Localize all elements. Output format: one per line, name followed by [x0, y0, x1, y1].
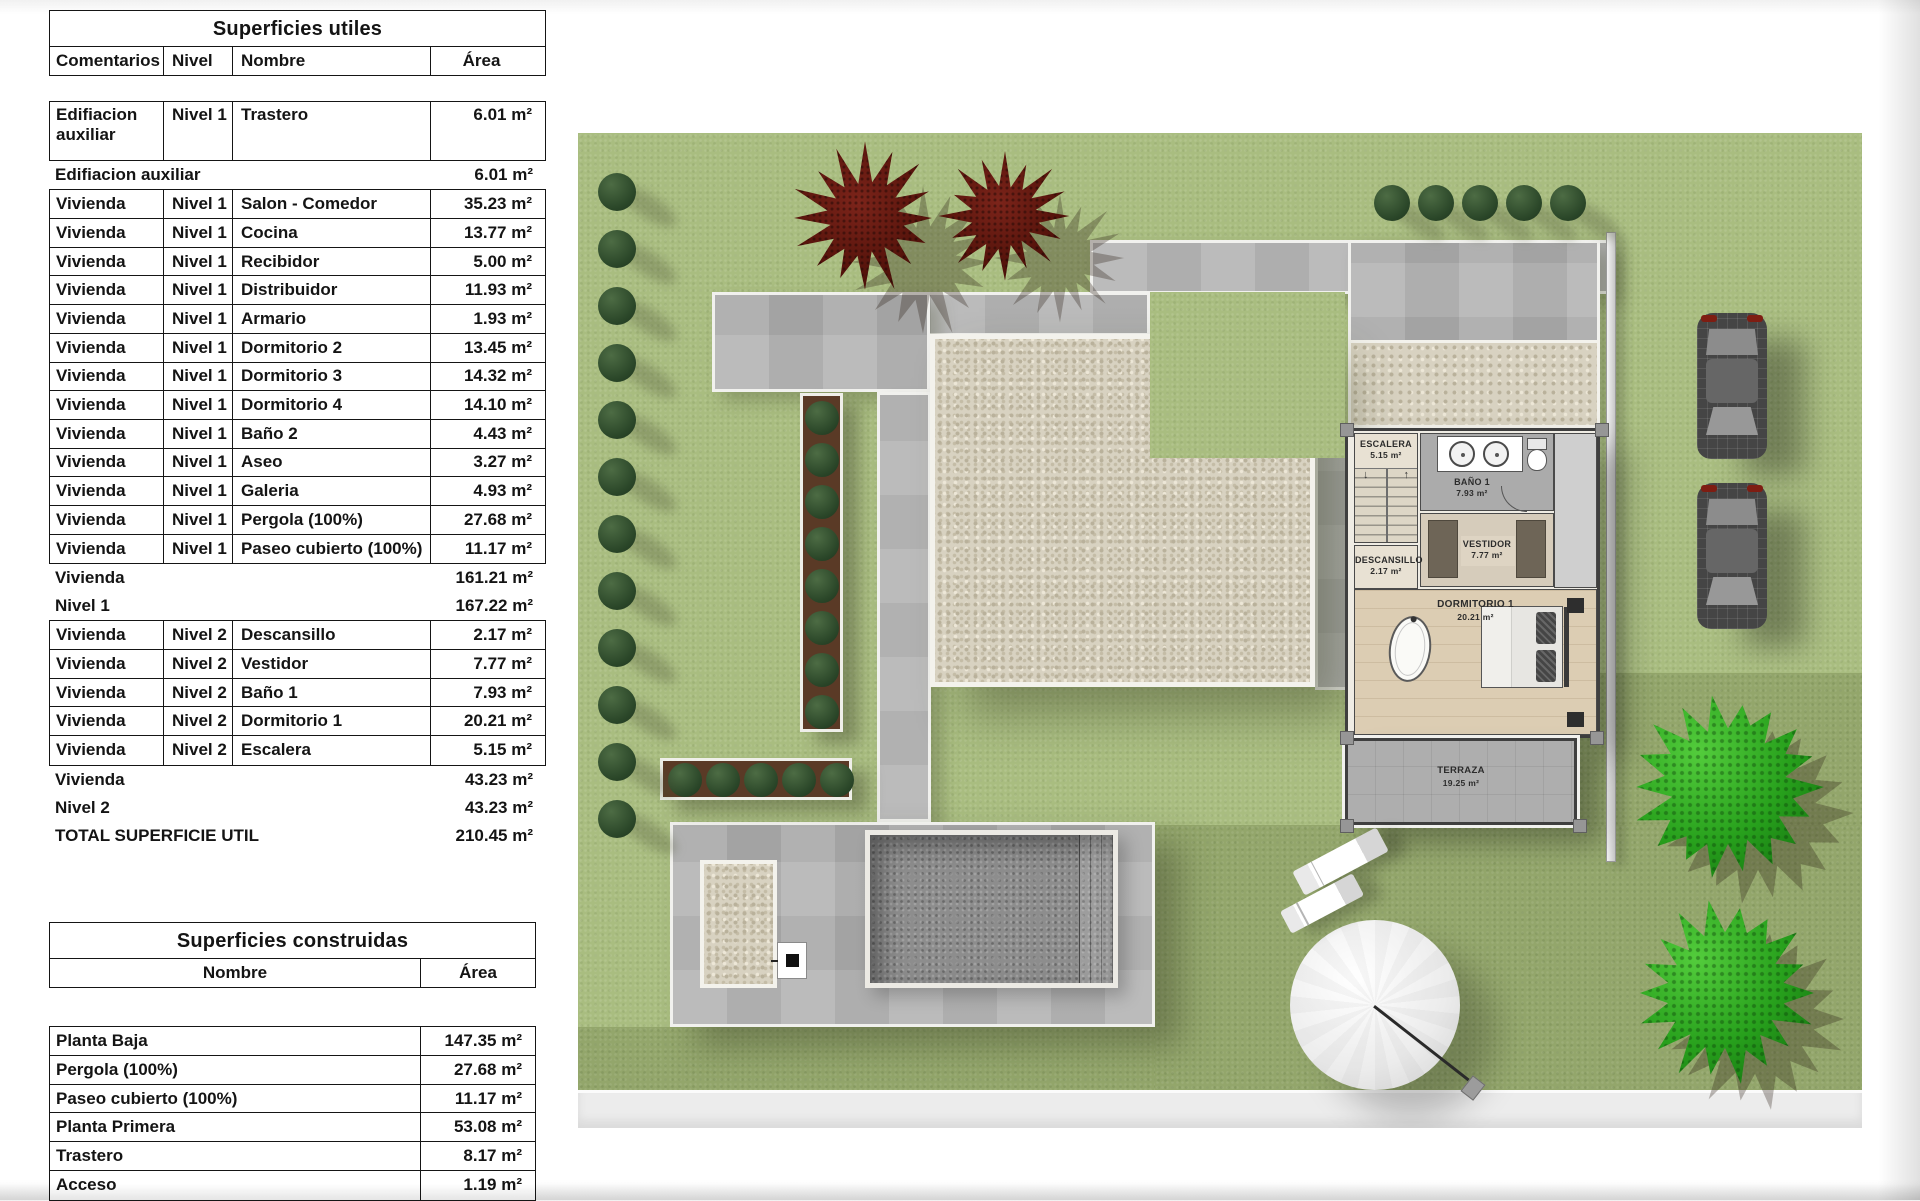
table-cell: 147.35 m²	[421, 1027, 535, 1055]
room-descansillo: DESCANSILLO2.17 m²	[1354, 545, 1418, 589]
decor: ESCALERA	[1355, 438, 1417, 450]
table-row: ViviendaNivel 1Recibidor5.00 m²	[50, 248, 545, 277]
table-cell: 11.17 m²	[431, 535, 545, 564]
table-cell: Vivienda	[50, 190, 164, 218]
planter-vertical	[800, 393, 843, 732]
table-cell: Vivienda	[50, 736, 164, 765]
table-cell: Nivel 1	[164, 449, 233, 477]
table-cell: Vivienda	[50, 363, 164, 391]
sidewalk	[578, 1090, 1862, 1128]
table-group: Planta Baja147.35 m²Pergola (100%)27.68 …	[49, 1026, 536, 1200]
table-header: Comentarios Nivel Nombre Área	[49, 46, 546, 76]
car-part	[1706, 329, 1758, 355]
table-subtotal-row: Vivienda43.23 m²	[49, 766, 546, 794]
table-cell: Vivienda	[50, 506, 164, 534]
header-area: Área	[431, 47, 545, 75]
table-cell: Vivienda	[50, 621, 164, 649]
room-bano-1: BAÑO 17.93 m²	[1420, 433, 1554, 511]
table-cell: 6.01 m²	[431, 102, 545, 160]
table-cell: 2.17 m²	[431, 621, 545, 649]
table-cell: Armario	[233, 305, 431, 333]
page-edge-shadow	[1878, 0, 1920, 1200]
decor: Nivel 2	[49, 798, 430, 818]
bush	[1462, 185, 1498, 221]
bush	[598, 686, 636, 724]
car-part	[1747, 315, 1763, 322]
table-cell: Paseo cubierto (100%)	[50, 1085, 421, 1113]
table-row: ViviendaNivel 2Vestidor7.77 m²	[50, 650, 545, 679]
table-cell: Nivel 1	[164, 391, 233, 419]
table-row: ViviendaNivel 1Armario1.93 m²	[50, 305, 545, 334]
bush	[598, 230, 636, 268]
garden-path	[877, 392, 931, 822]
table-row: ViviendaNivel 1Aseo3.27 m²	[50, 449, 545, 478]
table-cell: Vivienda	[50, 477, 164, 505]
table-row: ViviendaNivel 1Paseo cubierto (100%)11.1…	[50, 535, 545, 564]
table-cell: Nivel 1	[164, 305, 233, 333]
table-cell: Vivienda	[50, 420, 164, 448]
table-cell: Acceso	[50, 1171, 421, 1200]
decor: DESCANSILLO2.17 m²	[1355, 554, 1417, 578]
pool	[865, 830, 1118, 988]
table-row: ViviendaNivel 1Salon - Comedor35.23 m²	[50, 190, 545, 219]
table-cell: Paseo cubierto (100%)	[233, 535, 431, 564]
table-cell: Galeria	[233, 477, 431, 505]
table-cell: Dormitorio 4	[233, 391, 431, 419]
table-cell: Trastero	[50, 1142, 421, 1170]
bush	[744, 763, 778, 797]
outdoor-shower	[777, 942, 807, 979]
table-cell: Nivel 1	[164, 190, 233, 218]
bush	[598, 743, 636, 781]
table-cell: 35.23 m²	[431, 190, 545, 218]
bush	[805, 653, 839, 687]
bush	[598, 287, 636, 325]
table-cell: Cocina	[233, 219, 431, 247]
room-side	[1554, 433, 1597, 588]
table-cell: Nivel 1	[164, 334, 233, 362]
parasol	[1290, 920, 1460, 1090]
header-nivel: Nivel	[164, 47, 233, 75]
table-cell: Nivel 1	[164, 219, 233, 247]
bush	[805, 569, 839, 603]
table-row: ViviendaNivel 1Dormitorio 314.32 m²	[50, 363, 545, 392]
table-cell: Pergola (100%)	[233, 506, 431, 534]
table-cell: Vivienda	[50, 535, 164, 564]
car	[1697, 483, 1767, 629]
site-plan: ESCALERA5.15 m² ↓↑ BAÑO 17.93 m² VESTIDO…	[578, 133, 1862, 1128]
table-cell: Planta Primera	[50, 1113, 421, 1141]
table-cell: Trastero	[233, 102, 431, 160]
table-group: ViviendaNivel 1Salon - Comedor35.23 m²Vi…	[49, 189, 546, 564]
bush	[1506, 185, 1542, 221]
table-cell: Vivienda	[50, 650, 164, 678]
pillar	[1595, 423, 1609, 437]
table-cell: 27.68 m²	[431, 506, 545, 534]
table-row: Trastero8.17 m²	[50, 1142, 535, 1171]
car-part	[1701, 315, 1717, 322]
table-group: Edifiacion auxiliarNivel 1Trastero6.01 m…	[49, 101, 546, 161]
table-row: Planta Baja147.35 m²	[50, 1027, 535, 1056]
pillar	[1573, 819, 1587, 833]
table-cell: Nivel 1	[164, 248, 233, 276]
stairs: ↓↑	[1355, 468, 1417, 542]
table-row: Paseo cubierto (100%)11.17 m²	[50, 1085, 535, 1114]
decor: DORMITORIO 1	[1355, 598, 1596, 612]
table-cell: 5.15 m²	[431, 736, 545, 765]
car	[1697, 313, 1767, 459]
table-cell: Nivel 2	[164, 679, 233, 707]
decor: ESCALERA5.15 m²	[1355, 438, 1417, 462]
bush	[598, 572, 636, 610]
decor	[49, 988, 536, 1026]
bush	[598, 800, 636, 838]
bush	[805, 527, 839, 561]
bush	[820, 763, 854, 797]
table-row: Acceso1.19 m²	[50, 1171, 535, 1200]
header-comentarios: Comentarios	[50, 47, 164, 75]
lawn-notch	[1150, 292, 1345, 458]
table-cell: Baño 2	[233, 420, 431, 448]
table-row: ViviendaNivel 1Cocina13.77 m²	[50, 219, 545, 248]
decor: 7.93 m²	[1427, 488, 1517, 499]
table-cell: 11.17 m²	[421, 1085, 535, 1113]
table-cell: Salon - Comedor	[233, 190, 431, 218]
table-cell: Nivel 1	[164, 477, 233, 505]
table-row: ViviendaNivel 2Escalera5.15 m²	[50, 736, 545, 765]
table-cell: 14.32 m²	[431, 363, 545, 391]
sink	[1483, 441, 1509, 467]
header-area: Área	[421, 959, 535, 987]
table-body: Planta Baja147.35 m²Pergola (100%)27.68 …	[49, 1026, 536, 1200]
table-cell: Escalera	[233, 736, 431, 765]
decor: DORMITORIO 120.21 m²	[1355, 598, 1596, 623]
boundary-fence	[1606, 232, 1616, 862]
bush	[1550, 185, 1586, 221]
table-cell: Nivel 2	[164, 707, 233, 735]
decor	[49, 76, 546, 101]
table-cell: Vivienda	[50, 391, 164, 419]
decor: Vivienda	[49, 568, 430, 588]
table-cell: 5.00 m²	[431, 248, 545, 276]
bush	[598, 344, 636, 382]
table-row: ViviendaNivel 1Pergola (100%)27.68 m²	[50, 506, 545, 535]
header-nombre: Nombre	[233, 47, 431, 75]
superficies-construidas-table: Superficies construidas Nombre Área Plan…	[49, 922, 536, 1201]
table-total-row: TOTAL SUPERFICIE UTIL210.45 m²	[49, 822, 546, 850]
table-header: Nombre Área	[49, 958, 536, 988]
table-cell: 1.93 m²	[431, 305, 545, 333]
decor: 210.45 m²	[430, 826, 546, 846]
table-cell: Recibidor	[233, 248, 431, 276]
table-title: Superficies utiles	[49, 10, 546, 48]
decor: VESTIDOR	[1421, 538, 1553, 550]
table-cell: Descansillo	[233, 621, 431, 649]
table-cell: 4.43 m²	[431, 420, 545, 448]
table-cell: 13.77 m²	[431, 219, 545, 247]
table-cell: Vivienda	[50, 305, 164, 333]
pool-steps	[1079, 835, 1113, 983]
table-cell: 11.93 m²	[431, 276, 545, 304]
table-cell: 27.68 m²	[421, 1056, 535, 1084]
table-row: ViviendaNivel 2Dormitorio 120.21 m²	[50, 707, 545, 736]
bush	[805, 611, 839, 645]
bush	[598, 458, 636, 496]
table-cell: Vivienda	[50, 334, 164, 362]
house-upper-floor: ESCALERA5.15 m² ↓↑ BAÑO 17.93 m² VESTIDO…	[1345, 428, 1600, 738]
bush	[805, 443, 839, 477]
bush	[1374, 185, 1410, 221]
car-part	[1706, 499, 1758, 525]
decor: TERRAZA	[1348, 765, 1574, 778]
table-subtotal-row: Nivel 243.23 m²	[49, 794, 546, 822]
table-cell: Vivienda	[50, 707, 164, 735]
pillar	[1340, 731, 1354, 745]
table-cell: 7.93 m²	[431, 679, 545, 707]
pillar	[1340, 423, 1354, 437]
bush	[706, 763, 740, 797]
table-row: ViviendaNivel 2Baño 17.93 m²	[50, 679, 545, 708]
table-cell: Vivienda	[50, 449, 164, 477]
table-cell: Vivienda	[50, 679, 164, 707]
decor: 19.25 m²	[1348, 778, 1574, 789]
table-cell: 8.17 m²	[421, 1142, 535, 1170]
table-row: Pergola (100%)27.68 m²	[50, 1056, 535, 1085]
table-cell: 53.08 m²	[421, 1113, 535, 1141]
table-row: Edifiacion auxiliarNivel 1Trastero6.01 m…	[50, 102, 545, 160]
bush	[805, 485, 839, 519]
pillar	[1590, 731, 1604, 745]
table-cell: Vivienda	[50, 219, 164, 247]
table-cell: Vivienda	[50, 248, 164, 276]
terraza: TERRAZA19.25 m²	[1345, 738, 1577, 825]
table-cell: 7.77 m²	[431, 650, 545, 678]
decor: 20.21 m²	[1355, 612, 1596, 623]
side-walkway	[1315, 455, 1349, 690]
decor: 167.22 m²	[430, 596, 546, 616]
car-part	[1706, 577, 1758, 605]
bush	[598, 515, 636, 553]
room-escalera: ESCALERA5.15 m² ↓↑	[1354, 433, 1418, 543]
table-cell: Dormitorio 1	[233, 707, 431, 735]
terrace-left-block	[712, 292, 930, 392]
decor: DESCANSILLO	[1355, 554, 1417, 566]
decor: 5.15 m²	[1355, 450, 1417, 461]
table-body: Edifiacion auxiliarNivel 1Trastero6.01 m…	[49, 101, 546, 849]
table-cell: Dormitorio 2	[233, 334, 431, 362]
car-part	[1701, 485, 1717, 492]
table-cell: Nivel 1	[164, 276, 233, 304]
decor: 43.23 m²	[430, 798, 546, 818]
table-row: ViviendaNivel 2Descansillo2.17 m²	[50, 621, 545, 650]
table-cell: Distribuidor	[233, 276, 431, 304]
table-title: Superficies construidas	[49, 922, 536, 960]
table-cell: Aseo	[233, 449, 431, 477]
table-cell: 13.45 m²	[431, 334, 545, 362]
table-row: ViviendaNivel 1Galeria4.93 m²	[50, 477, 545, 506]
table-cell: 4.93 m²	[431, 477, 545, 505]
bush	[598, 629, 636, 667]
decor: 161.21 m²	[430, 568, 546, 588]
table-cell: Nivel 1	[164, 102, 233, 160]
car-part	[1706, 529, 1758, 573]
table-cell: Dormitorio 3	[233, 363, 431, 391]
table-cell: Edifiacion auxiliar	[50, 102, 164, 160]
decor: BAÑO 17.93 m²	[1427, 476, 1517, 500]
bush	[782, 763, 816, 797]
decor: 2.17 m²	[1355, 566, 1417, 577]
decor: 43.23 m²	[430, 770, 546, 790]
driveway-gravel	[1348, 340, 1600, 428]
vanity	[1437, 436, 1523, 472]
bush	[598, 401, 636, 439]
decor: 6.01 m²	[430, 165, 546, 185]
bush	[805, 401, 839, 435]
toilet	[1525, 438, 1547, 472]
table-cell: Planta Baja	[50, 1027, 421, 1055]
car-part	[1706, 359, 1758, 403]
lawn-dark	[578, 1027, 1155, 1090]
table-row: ViviendaNivel 1Baño 24.43 m²	[50, 420, 545, 449]
room-dormitorio-1: DORMITORIO 120.21 m²	[1354, 589, 1597, 735]
superficies-utiles-table: Superficies utiles Comentarios Nivel Nom…	[49, 10, 546, 850]
table-cell: Nivel 1	[164, 535, 233, 564]
table-cell: 1.19 m²	[421, 1171, 535, 1200]
table-group: ViviendaNivel 2Descansillo2.17 m²Viviend…	[49, 620, 546, 765]
car-part	[1706, 407, 1758, 435]
bush	[598, 173, 636, 211]
decor: TERRAZA19.25 m²	[1348, 765, 1574, 789]
table-row: ViviendaNivel 1Distribuidor11.93 m²	[50, 276, 545, 305]
planter-horizontal	[660, 758, 852, 800]
sink	[1449, 441, 1475, 467]
decor: VESTIDOR7.77 m²	[1421, 538, 1553, 562]
table-row: Planta Primera53.08 m²	[50, 1113, 535, 1142]
decor: 7.77 m²	[1421, 550, 1553, 561]
table-cell: Vestidor	[233, 650, 431, 678]
decor: TOTAL SUPERFICIE UTIL	[49, 826, 430, 846]
decor: Nivel 1	[49, 596, 430, 616]
table-cell: Baño 1	[233, 679, 431, 707]
table-cell: 3.27 m²	[431, 449, 545, 477]
arrow-up-icon: ↑	[1404, 469, 1410, 481]
table-row: ViviendaNivel 1Dormitorio 213.45 m²	[50, 334, 545, 363]
pillar	[1340, 819, 1354, 833]
table-cell: Pergola (100%)	[50, 1056, 421, 1084]
decor: Edifiacion auxiliar	[49, 165, 430, 185]
table-cell: Nivel 2	[164, 736, 233, 765]
pillow	[1536, 650, 1556, 682]
table-subtotal-row: Edifiacion auxiliar6.01 m²	[49, 161, 546, 189]
table-cell: 20.21 m²	[431, 707, 545, 735]
bush	[1418, 185, 1454, 221]
table-cell: Nivel 1	[164, 420, 233, 448]
table-row: ViviendaNivel 1Dormitorio 414.10 m²	[50, 391, 545, 420]
decor: BAÑO 1	[1427, 476, 1517, 488]
arrow-down-icon: ↓	[1363, 469, 1369, 481]
table-cell: Nivel 2	[164, 650, 233, 678]
bathtub	[1385, 614, 1435, 685]
table-subtotal-row: Nivel 1167.22 m²	[49, 592, 546, 620]
bush	[805, 695, 839, 729]
gravel-pad	[700, 860, 777, 988]
car-part	[1747, 485, 1763, 492]
nightstand	[1567, 712, 1584, 727]
table-cell: 14.10 m²	[431, 391, 545, 419]
decor	[786, 954, 799, 967]
table-cell: Nivel 1	[164, 506, 233, 534]
table-cell: Vivienda	[50, 276, 164, 304]
decor: Vivienda	[49, 770, 430, 790]
room-vestidor: VESTIDOR7.77 m²	[1420, 513, 1554, 587]
table-cell: Nivel 1	[164, 363, 233, 391]
table-cell: Nivel 2	[164, 621, 233, 649]
table-subtotal-row: Vivienda161.21 m²	[49, 564, 546, 592]
header-nombre: Nombre	[50, 959, 421, 987]
